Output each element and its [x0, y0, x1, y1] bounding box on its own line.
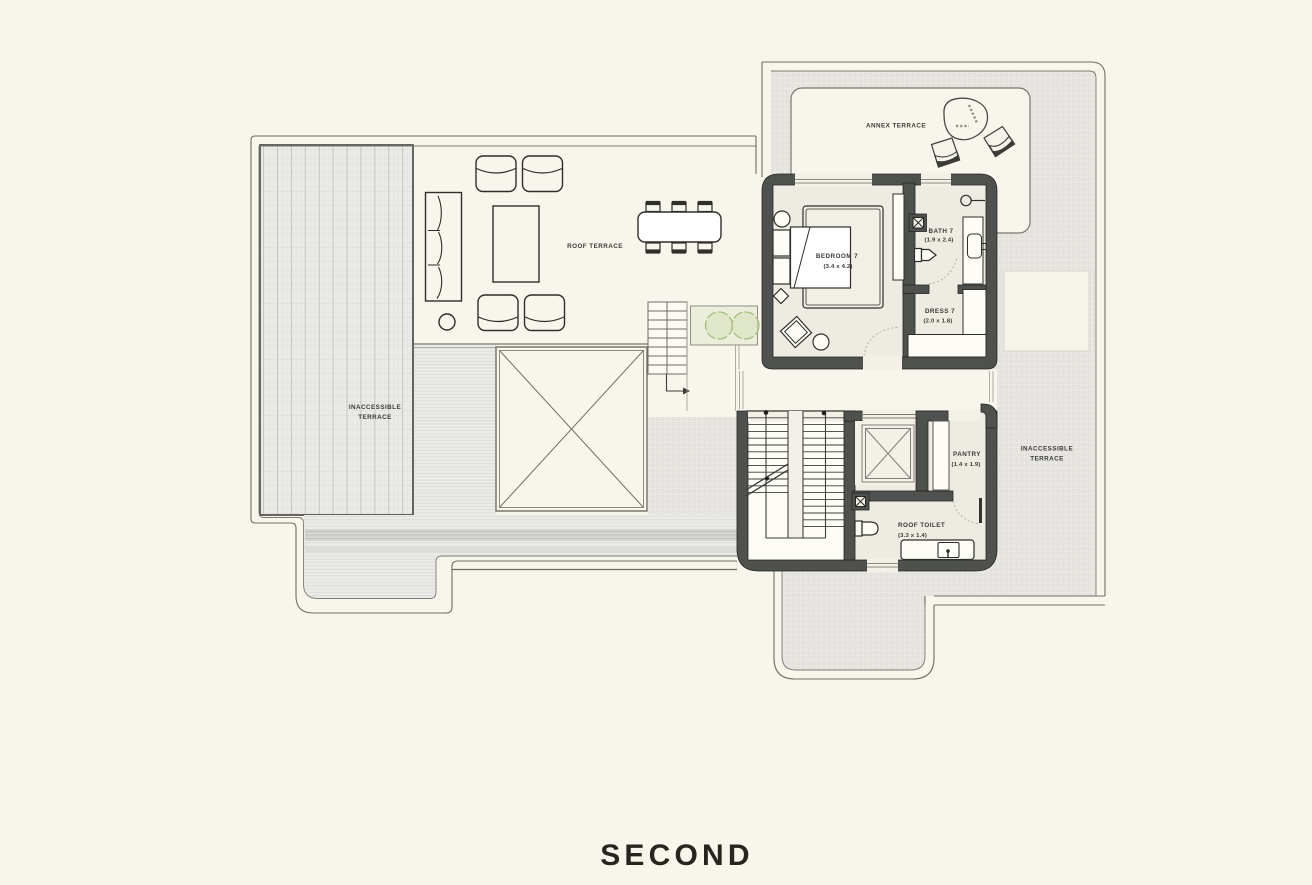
svg-text:PANTRY: PANTRY	[953, 451, 981, 458]
svg-text:(2.0 x 1.8): (2.0 x 1.8)	[923, 319, 952, 325]
svg-text:(1.9 x 2.4): (1.9 x 2.4)	[924, 238, 953, 244]
svg-text:SECOND: SECOND	[600, 839, 754, 872]
svg-text:ROOF TOILET: ROOF TOILET	[898, 522, 945, 529]
svg-text:(1.4 x 1.9): (1.4 x 1.9)	[951, 462, 980, 468]
svg-text:ROOF TERRACE: ROOF TERRACE	[567, 243, 623, 250]
svg-text:TERRACE: TERRACE	[358, 414, 392, 421]
svg-text:ANNEX TERRACE: ANNEX TERRACE	[866, 123, 926, 130]
svg-text:TERRACE: TERRACE	[1030, 456, 1064, 463]
svg-text:(3.3 x 1.4): (3.3 x 1.4)	[898, 533, 927, 539]
svg-text:BATH 7: BATH 7	[929, 228, 954, 235]
svg-text:(3.4 x 4.2): (3.4 x 4.2)	[823, 264, 852, 270]
svg-text:INACCESSIBLE: INACCESSIBLE	[349, 404, 401, 411]
svg-text:INACCESSIBLE: INACCESSIBLE	[1021, 446, 1073, 453]
svg-text:BEDROOM 7: BEDROOM 7	[816, 253, 858, 260]
svg-text:DRESS 7: DRESS 7	[925, 308, 955, 315]
